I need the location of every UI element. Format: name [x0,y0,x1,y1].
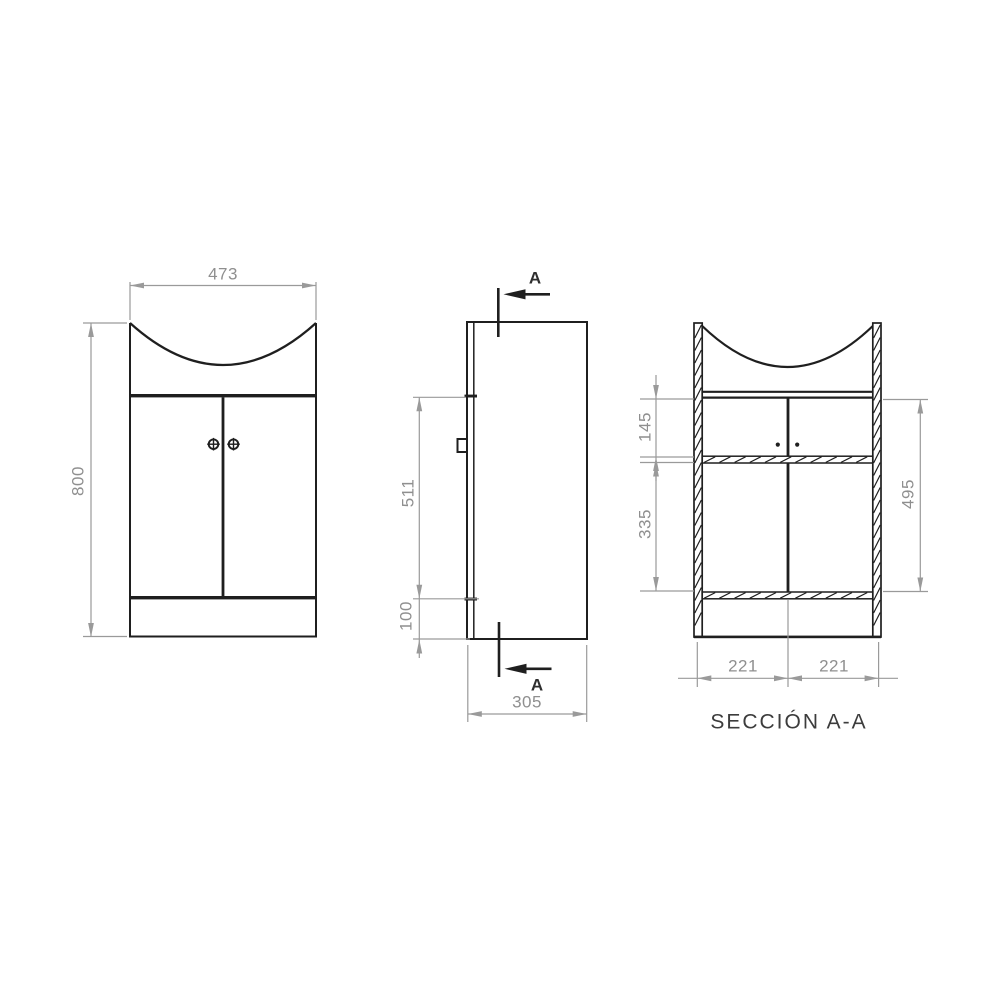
technical-drawing-page: 473 800 511 100 305 A A 145 335 495 221 … [0,0,1000,1000]
arrowhead-icon [917,578,923,592]
dim-label-upper-compartment: 145 [637,412,654,442]
arrowhead-icon [653,577,659,591]
door-top-joint [465,395,478,398]
section-marker-bottom: A [531,677,543,694]
side-plinth-dimension-lines [413,599,470,658]
side-view [413,288,587,722]
section-title: SECCIÓN A-A [710,712,867,733]
dim-label-front-height: 800 [70,466,87,496]
arrowhead-icon [774,675,788,681]
arrowhead-icon [865,675,879,681]
arrowhead-icon [130,283,144,289]
arrowhead-icon [416,640,422,654]
side-cabinet-outline [458,322,588,639]
basin-curve [702,326,873,367]
arrowhead-icon [917,400,923,414]
dim-label-left-half-width: 221 [728,658,758,675]
dim-label-depth: 305 [512,694,542,711]
section-marker-top: A [529,270,541,287]
knob-dot-icon [776,443,780,447]
cut-arrow-icon [505,664,527,674]
arrowhead-icon [416,585,422,599]
front-cabinet-outline [130,323,316,637]
arrowhead-icon [653,385,659,399]
arrowhead-icon [468,711,482,717]
door-gap [222,397,225,596]
side-door-dimension-lines [413,397,479,599]
upper-divider [787,398,790,457]
knob-dot-icon [795,443,799,447]
arrowhead-icon [573,711,587,717]
section-structure [694,323,881,638]
door-bottom-edge [130,596,316,599]
section-cut-line-top [498,288,550,337]
arrowhead-icon [416,397,422,411]
front-view [83,282,316,637]
cut-arrow-icon [504,289,526,299]
dim-label-plinth-height: 100 [398,601,415,631]
dim-label-interior-height: 495 [900,479,917,509]
countertop-edge [130,394,316,397]
dim-label-lower-compartment: 335 [637,509,654,539]
basin-curve [130,323,316,365]
section-cut-line-bottom [499,622,552,677]
front-height-dimension-lines [83,323,127,637]
lower-divider [787,463,790,592]
section-width-dimensions [678,600,898,687]
arrowhead-icon [788,675,802,681]
handle-profile [458,439,468,452]
drawing-canvas [0,0,1000,1000]
dim-label-door-height: 511 [400,479,417,508]
arrowhead-icon [88,623,94,637]
arrowhead-icon [88,323,94,337]
front-width-dimension-lines [130,282,316,320]
section-view [640,323,928,687]
arrowhead-icon [697,675,711,681]
dim-label-right-half-width: 221 [819,658,849,675]
dim-label-front-width: 473 [208,266,238,283]
arrowhead-icon [302,283,316,289]
